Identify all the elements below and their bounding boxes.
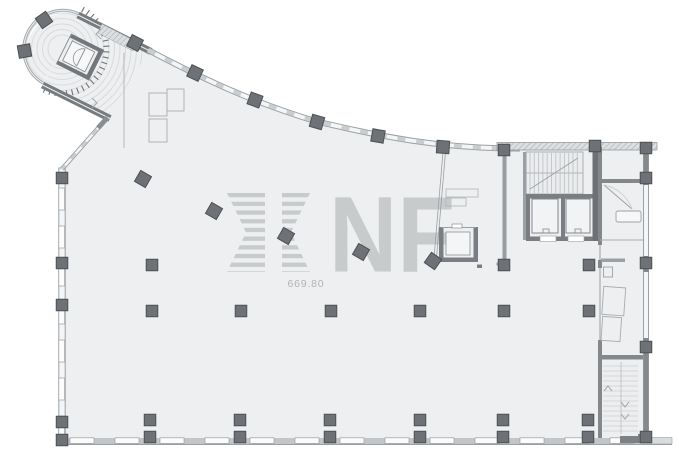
column: [234, 431, 246, 443]
column: [144, 431, 156, 443]
column: [56, 257, 68, 269]
column: [497, 414, 509, 426]
mullion-panel: [59, 378, 65, 400]
column: [414, 431, 426, 443]
service-elevator-cab: [446, 232, 470, 255]
mullion-panel: [340, 438, 364, 444]
mullion-panel: [475, 438, 499, 444]
column: [640, 341, 652, 353]
wall-tick: [477, 265, 482, 269]
core-elevator-left-cab: [532, 199, 558, 233]
floor-plan-drawing: NF 669.80: [0, 0, 679, 469]
core-elevator-left-door: [540, 236, 556, 242]
mullion-panel: [385, 438, 409, 444]
column: [583, 305, 595, 317]
column: [582, 414, 594, 426]
floor-plan-canvas: NF 669.80: [0, 0, 679, 469]
column: [583, 259, 595, 271]
column: [414, 414, 426, 426]
mullion-panel: [205, 438, 229, 444]
tick: [86, 10, 89, 15]
mullion-panel: [115, 438, 139, 444]
mullion-panel: [520, 438, 544, 444]
column: [498, 259, 510, 271]
southeast-stair: [602, 360, 638, 436]
column: [498, 144, 510, 156]
column: [640, 257, 652, 269]
core-elevator-right-door: [568, 236, 584, 242]
column: [56, 434, 68, 446]
column: [56, 172, 68, 184]
column: [498, 305, 510, 317]
column: [324, 431, 336, 443]
column: [582, 431, 594, 443]
column: [324, 414, 336, 426]
column: [146, 305, 158, 317]
column: [325, 305, 337, 317]
service-shaft-bottom-wall: [439, 258, 478, 263]
mullion-panel: [295, 438, 319, 444]
sink-counter: [616, 211, 641, 222]
elevator-block-right-wall: [593, 194, 599, 241]
east-wall-solid-bottom: [644, 338, 649, 440]
column: [436, 140, 449, 153]
mullion-panel: [250, 438, 274, 444]
column: [640, 142, 652, 154]
southeast-stoop: [650, 438, 672, 445]
service-elevator-door-tick: [452, 224, 462, 228]
north-east-wall: [497, 143, 657, 151]
service-shaft-left-wall: [439, 227, 444, 262]
column: [235, 305, 247, 317]
core-wall-left: [523, 152, 527, 240]
column: [144, 414, 156, 426]
mullion-panel: [430, 438, 454, 444]
corridor-wall-upper: [598, 147, 602, 245]
hall-partition-wall: [503, 150, 507, 264]
column: [146, 259, 158, 271]
column: [640, 172, 652, 184]
column: [414, 305, 426, 317]
column: [497, 431, 509, 443]
column: [589, 140, 601, 152]
mullion-panel: [59, 226, 65, 248]
column: [640, 431, 652, 443]
column: [56, 416, 68, 428]
room-partition-small: [601, 259, 625, 263]
room-partition-upper: [600, 179, 646, 183]
column: [309, 114, 324, 129]
room-partition-south: [600, 355, 643, 360]
corridor-wall-lower: [598, 340, 602, 438]
mullion-panel: [160, 438, 184, 444]
elevator-block-left-wall: [526, 194, 530, 241]
service-shaft-right-wall: [474, 227, 479, 262]
column: [17, 44, 31, 58]
mullion-panel: [59, 188, 65, 210]
column: [56, 299, 68, 311]
mullion-panel: [70, 438, 94, 444]
hatched-wall: [497, 143, 657, 151]
tick: [81, 7, 84, 12]
column: [371, 129, 385, 143]
mullion-panel: [59, 340, 65, 362]
elevation-label: 669.80: [288, 278, 325, 290]
elevator-block-pier: [561, 194, 565, 241]
column: [234, 414, 246, 426]
core-elevator-right-cab: [566, 199, 590, 233]
